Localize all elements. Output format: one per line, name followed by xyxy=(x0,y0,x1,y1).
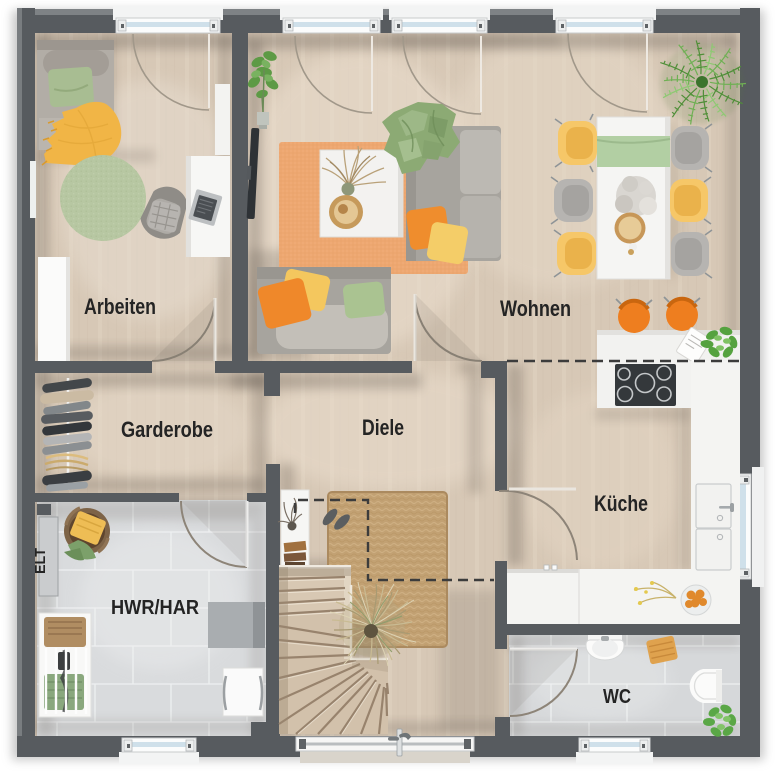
svg-text:Küche: Küche xyxy=(594,491,648,516)
svg-text:ELT: ELT xyxy=(32,548,49,574)
svg-text:Diele: Diele xyxy=(362,415,404,440)
svg-text:Arbeiten: Arbeiten xyxy=(84,294,156,319)
svg-text:WC: WC xyxy=(603,686,631,708)
svg-text:Garderobe: Garderobe xyxy=(121,417,213,442)
svg-text:HWR/HAR: HWR/HAR xyxy=(111,597,200,619)
svg-text:Wohnen: Wohnen xyxy=(500,296,571,321)
